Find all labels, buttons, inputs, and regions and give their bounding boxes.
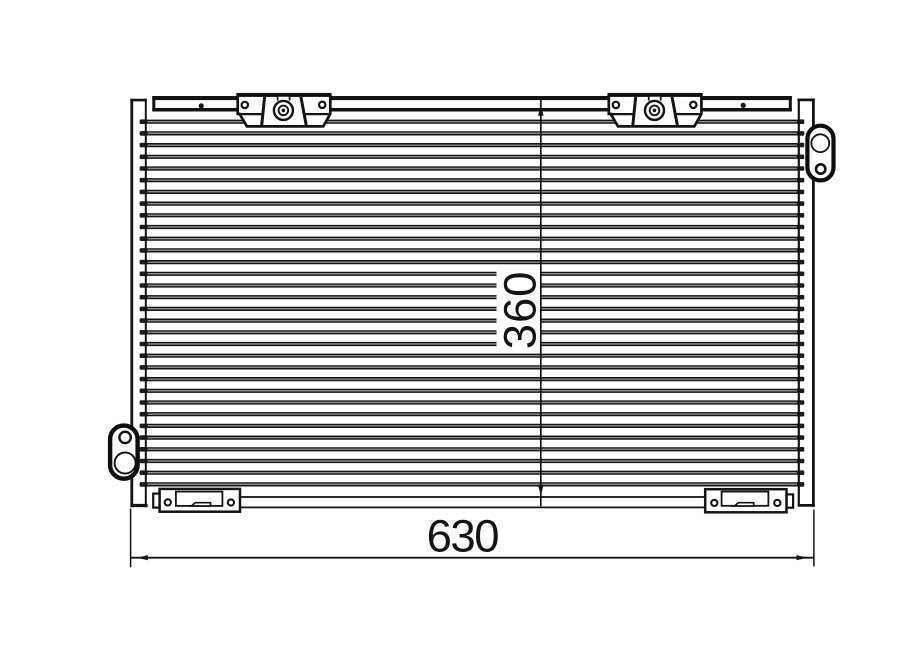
svg-text:360: 360 (495, 271, 546, 350)
svg-text:630: 630 (427, 511, 499, 562)
